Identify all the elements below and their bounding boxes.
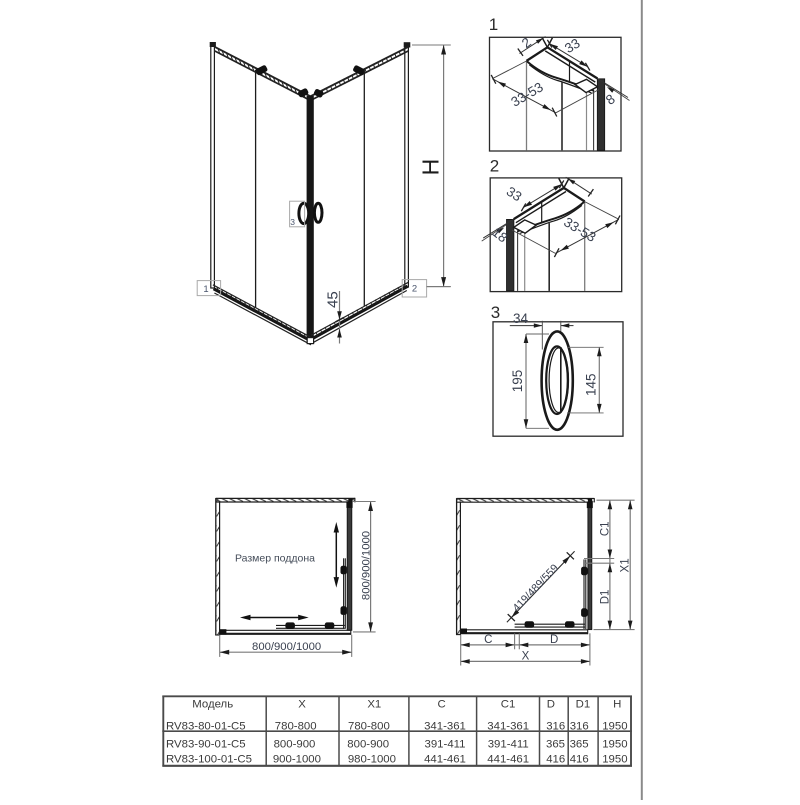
svg-text:C: C: [484, 634, 492, 646]
svg-text:3: 3: [290, 217, 295, 227]
svg-text:365: 365: [546, 738, 565, 750]
svg-text:195: 195: [510, 370, 525, 393]
svg-text:441-461: 441-461: [424, 754, 466, 766]
svg-text:X1: X1: [367, 699, 381, 711]
svg-text:H: H: [417, 159, 443, 176]
svg-text:D1: D1: [576, 699, 591, 711]
svg-text:Размер поддона: Размер поддона: [235, 552, 315, 564]
svg-text:X: X: [522, 651, 530, 663]
svg-text:X1: X1: [620, 558, 632, 572]
svg-text:3: 3: [491, 303, 500, 322]
svg-text:1950: 1950: [602, 754, 627, 766]
svg-text:800/900/1000: 800/900/1000: [360, 531, 372, 600]
svg-text:900-1000: 900-1000: [273, 754, 321, 766]
svg-text:RV83-100-01-C5: RV83-100-01-C5: [166, 754, 252, 766]
svg-text:D1: D1: [600, 590, 612, 605]
svg-text:980-1000: 980-1000: [348, 754, 396, 766]
svg-text:RV83-80-01-C5: RV83-80-01-C5: [166, 721, 246, 733]
svg-text:Модель: Модель: [192, 699, 233, 711]
svg-text:341-361: 341-361: [424, 721, 466, 733]
svg-text:441-461: 441-461: [487, 754, 529, 766]
svg-text:341-361: 341-361: [487, 721, 529, 733]
svg-text:780-800: 780-800: [348, 721, 390, 733]
svg-text:145: 145: [583, 373, 598, 396]
svg-text:C1: C1: [501, 699, 516, 711]
svg-text:1950: 1950: [602, 721, 627, 733]
svg-text:D: D: [547, 699, 555, 711]
svg-text:316: 316: [546, 721, 565, 733]
svg-text:416: 416: [570, 754, 589, 766]
svg-text:H: H: [613, 699, 621, 711]
svg-text:C: C: [437, 699, 445, 711]
svg-text:2: 2: [490, 157, 499, 176]
svg-text:800-900: 800-900: [274, 738, 316, 750]
svg-text:2: 2: [412, 284, 417, 295]
svg-text:365: 365: [570, 738, 589, 750]
svg-text:416: 416: [546, 754, 565, 766]
svg-text:780-800: 780-800: [275, 721, 317, 733]
svg-text:1: 1: [203, 284, 208, 295]
svg-text:391-411: 391-411: [488, 738, 529, 750]
svg-text:45: 45: [324, 291, 341, 308]
svg-text:C1: C1: [600, 521, 612, 536]
svg-text:X: X: [298, 699, 306, 711]
svg-text:D: D: [550, 634, 558, 646]
svg-text:1950: 1950: [602, 738, 627, 750]
svg-text:34: 34: [513, 311, 529, 326]
svg-text:391-411: 391-411: [425, 738, 466, 750]
svg-text:RV83-90-01-C5: RV83-90-01-C5: [166, 738, 246, 750]
svg-text:800-900: 800-900: [347, 738, 389, 750]
svg-text:800/900/1000: 800/900/1000: [252, 641, 321, 653]
svg-text:316: 316: [570, 721, 589, 733]
svg-text:1: 1: [489, 15, 498, 34]
